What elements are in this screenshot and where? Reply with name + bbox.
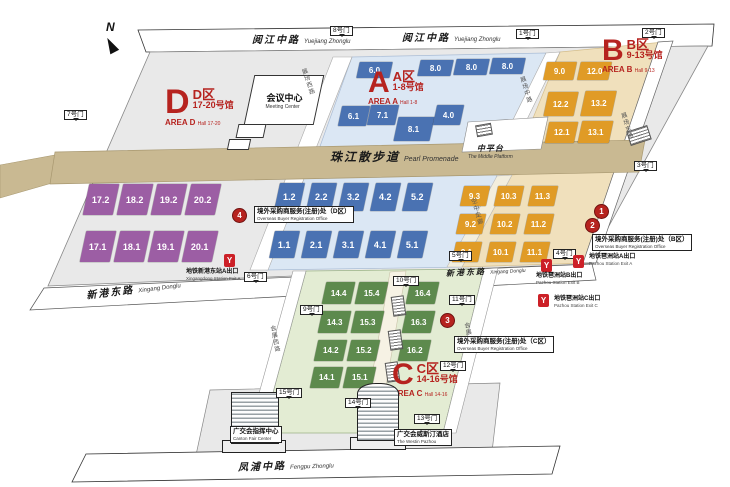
- hall-number: 16.2: [407, 346, 423, 355]
- hall: 12.1: [545, 122, 578, 143]
- hall-number: 13.2: [591, 99, 607, 108]
- road-label-en: Xingang Donglu: [490, 268, 526, 276]
- hall-number: 14.1: [319, 373, 335, 382]
- building-label-en: Canton Fair Center: [233, 436, 279, 442]
- canton-fair-center-label: 广交会指挥中心 Canton Fair Center: [230, 426, 282, 443]
- hall-number: 17.2: [92, 195, 110, 205]
- metro-exit-label: 地铁琶洲站B出口Pazhou Station Exit B: [536, 273, 582, 285]
- hall-number: 9.0: [554, 67, 565, 76]
- hall: 4.0: [433, 105, 464, 125]
- meeting-center-cn: 会议中心: [267, 91, 303, 104]
- hall-number: 15.4: [364, 289, 380, 298]
- hall: 13.2: [580, 91, 616, 116]
- metro-exit-cn: 地铁琶洲站B出口: [536, 273, 582, 280]
- hall-number: 8.0: [466, 63, 477, 72]
- road-label-en: Yuejiang Zhonglu: [454, 37, 500, 43]
- hall: 14.3: [318, 311, 352, 333]
- reg-office-en: Overseas Buyer Registration Office: [457, 346, 551, 352]
- gate-label: 14号门: [345, 398, 371, 408]
- gate-label: 1号门: [516, 29, 539, 39]
- marker-circle-2: 2: [585, 218, 600, 233]
- metro-exit-cn: 地铁新港东站A出口: [186, 269, 241, 276]
- compass: N: [106, 18, 116, 53]
- road-label-cn: 珠江散步道: [330, 150, 400, 164]
- stairs-icon: [388, 329, 404, 351]
- reg-office-cn: 境外采购商服务(注册)处（C区）: [457, 338, 551, 346]
- hall-number: 20.2: [194, 195, 212, 205]
- gate-label: 3号门: [634, 161, 657, 171]
- hall: 8.1: [393, 117, 434, 141]
- band-promenade-ext: [0, 155, 55, 198]
- reg-office-b-label: 境外采购商服务(注册)处（B区） Overseas Buyer Registra…: [592, 234, 692, 251]
- reg-office-en: Overseas Buyer Registration Office: [257, 216, 351, 222]
- hall: 6.1: [338, 106, 370, 126]
- hall-number: 10.3: [501, 192, 517, 201]
- metro-exit-en: Pazhou Station Exit A: [589, 261, 635, 266]
- gate-label: 2号门: [642, 28, 665, 38]
- metro-exit-en: Pazhou Station Exit B: [536, 280, 582, 285]
- hall: 14.1: [310, 367, 343, 388]
- area-letter: B: [602, 36, 624, 66]
- reg-office-c-label: 境外采购商服务(注册)处（C区） Overseas Buyer Registra…: [454, 336, 554, 353]
- meeting-center-en: Meeting Center: [266, 104, 300, 110]
- gate-label: 15号门: [276, 388, 302, 398]
- hall-number: 3.2: [347, 192, 360, 202]
- hall-number: 12.2: [553, 100, 569, 109]
- westin-label: 广交会威斯汀酒店 The Westin Pazhou: [394, 429, 452, 446]
- metro-exit-cn: 地铁琶洲站A出口: [589, 254, 635, 261]
- gate-label: 10号门: [393, 276, 419, 286]
- gate-label: 11号门: [449, 295, 475, 305]
- road-label-cn: 新港东路: [446, 267, 486, 278]
- area-halls-cn: 17-20号馆: [193, 101, 234, 110]
- gate-label: 13号门: [414, 414, 440, 424]
- hall-number: 17.1: [89, 242, 107, 252]
- hall-number: 5.2: [411, 192, 424, 202]
- metro-exit-en: Pazhou Station Exit C: [554, 303, 600, 308]
- hall: 15.3: [351, 311, 385, 333]
- gate-label: 12号门: [440, 361, 466, 371]
- hall-number: 1.2: [283, 192, 296, 202]
- hall-number: 8.0: [430, 64, 441, 73]
- road-label-cn: 中平台: [468, 143, 513, 154]
- road-label-en: Pearl Promenade: [404, 156, 458, 163]
- hall: 15.4: [355, 282, 389, 304]
- metro-exit-label: 地铁新港东站A出口Xingangdong Station Exit A: [186, 269, 241, 281]
- hall-number: 12.0: [587, 67, 603, 76]
- marker-circle-1: 1: [594, 204, 609, 219]
- area-letter: C: [392, 360, 414, 390]
- hall-number: 6.1: [348, 112, 359, 121]
- hall: 11.2: [524, 214, 554, 234]
- hall-number: 4.2: [379, 192, 392, 202]
- hall-number: 12.1: [554, 128, 570, 137]
- hall: 16.3: [402, 311, 436, 333]
- metro-icon: Y: [573, 255, 584, 268]
- hall-number: 4.1: [374, 240, 387, 250]
- hall-number: 5.1: [406, 240, 419, 250]
- reg-office-d-label: 境外采购商服务(注册)处（D区） Overseas Buyer Registra…: [254, 206, 354, 223]
- hall-number: 20.1: [191, 242, 209, 252]
- annex-building: [236, 124, 267, 138]
- area-name-en: AREA C Hall 14-16: [392, 390, 458, 398]
- hall-number: 3.1: [342, 240, 355, 250]
- area-name-en: AREA D Hall 17-20: [165, 119, 234, 127]
- hall: 10.3: [494, 186, 524, 206]
- hall: 10.1: [486, 242, 516, 262]
- road-promenade: 珠江散步道Pearl Promenade: [330, 148, 459, 165]
- hall-number: 18.1: [123, 242, 141, 252]
- hall-number: 16.4: [415, 289, 431, 298]
- compass-label: N: [106, 20, 115, 34]
- hall-number: 1.1: [278, 240, 291, 250]
- hall-number: 14.4: [331, 289, 347, 298]
- hall: 8.0: [489, 58, 525, 74]
- hall: 7.1: [367, 105, 399, 125]
- hall-number: 14.2: [323, 346, 339, 355]
- hall-number: 2.2: [315, 192, 328, 202]
- area-letter: D: [165, 85, 190, 119]
- gate-label: 7号门: [64, 110, 87, 120]
- hall: 11.3: [528, 186, 558, 206]
- hall-number: 19.1: [157, 242, 175, 252]
- metro-exit-cn: 地铁琶洲站C出口: [554, 296, 600, 303]
- hall-number: 11.2: [531, 220, 546, 229]
- metro-icon: Y: [538, 294, 549, 307]
- road-label-cn: 阅江中路: [252, 35, 300, 46]
- metro-exit-label: 地铁琶洲站C出口Pazhou Station Exit C: [554, 296, 600, 308]
- hall-number: 15.3: [360, 318, 376, 327]
- metro-exit-en: Xingangdong Station Exit A: [186, 276, 241, 281]
- hall: 9.0: [543, 62, 577, 80]
- hall-number: 15.2: [356, 346, 372, 355]
- area-title-d: D D区 17-20号馆 AREA D Hall 17-20: [165, 85, 234, 127]
- gate-label: 8号门: [330, 26, 353, 36]
- reg-office-en: Overseas Buyer Registration Office: [595, 244, 689, 250]
- area-letter: A: [368, 68, 390, 98]
- hall-number: 10.2: [497, 220, 513, 229]
- reg-office-cn: 境外采购商服务(注册)处（D区）: [257, 208, 351, 216]
- canton-fair-map: N 阅江中路Yuejiang Zhonglu 阅江中路Yuejiang Zhon…: [0, 0, 730, 487]
- marker-circle-3: 3: [440, 313, 455, 328]
- hall: 13.1: [578, 121, 614, 143]
- road-label-en: Fengpu Zhonglu: [290, 463, 334, 471]
- building-label-en: The Westin Pazhou: [397, 439, 449, 445]
- hall-number: 4.0: [443, 111, 454, 120]
- hall-number: 14.3: [327, 318, 343, 327]
- hall-number: 8.1: [408, 125, 419, 134]
- road-label-cn: 阅江中路: [402, 33, 450, 44]
- westin-tower: [357, 383, 399, 441]
- gate-label: 9号门: [300, 305, 323, 315]
- metro-icon: Y: [224, 254, 235, 267]
- road-label-en: The Middle Platform: [468, 154, 513, 160]
- hall-number: 16.3: [411, 318, 427, 327]
- hall-number: 11.3: [535, 192, 550, 201]
- hall: 12.2: [543, 92, 578, 116]
- hall-number: 11.1: [527, 248, 542, 257]
- hall: 8.0: [453, 59, 489, 75]
- area-name-en: AREA B Hall 9-13: [602, 66, 663, 74]
- gate-label: 6号门: [244, 272, 267, 282]
- road-yuejiang-east: 阅江中路Yuejiang Zhonglu: [402, 29, 500, 44]
- stairs-icon: [391, 295, 407, 317]
- hall-number: 10.1: [493, 248, 509, 257]
- annex-building: [227, 139, 251, 150]
- hall: 14.2: [314, 340, 347, 361]
- area-halls-cn: 14-16号馆: [417, 375, 458, 384]
- hall: 10.2: [490, 214, 520, 234]
- reg-office-cn: 境外采购商服务(注册)处（B区）: [595, 236, 689, 244]
- area-title-a: A A区 1-8号馆 AREA A Hall 1-8: [368, 68, 424, 106]
- gate-label: 5号门: [449, 251, 472, 261]
- hall: 14.4: [322, 282, 356, 304]
- hall-number: 13.1: [588, 128, 604, 137]
- marker-circle-4: 4: [232, 208, 247, 223]
- area-halls-cn: 1-8号馆: [393, 83, 424, 92]
- hall: 15.2: [347, 340, 380, 361]
- building-label-cn: 广交会指挥中心: [233, 428, 279, 436]
- hall-number: 15.1: [352, 373, 368, 382]
- hall-number: 2.1: [310, 240, 323, 250]
- metro-exit-label: 地铁琶洲站A出口Pazhou Station Exit A: [589, 254, 635, 266]
- metro-icon: Y: [541, 259, 552, 272]
- middle-platform-label: 中平台 The Middle Platform: [468, 143, 513, 160]
- hall-number: 7.1: [377, 111, 388, 120]
- hall-number: 19.2: [160, 195, 178, 205]
- building-label-cn: 广交会威斯汀酒店: [397, 431, 449, 439]
- hall-number: 18.2: [126, 195, 144, 205]
- area-halls-cn: 9-13号馆: [627, 51, 663, 60]
- area-name-en: AREA A Hall 1-8: [368, 98, 424, 106]
- hall-number: 8.0: [502, 62, 513, 71]
- road-label-cn: 凤浦中路: [238, 461, 286, 474]
